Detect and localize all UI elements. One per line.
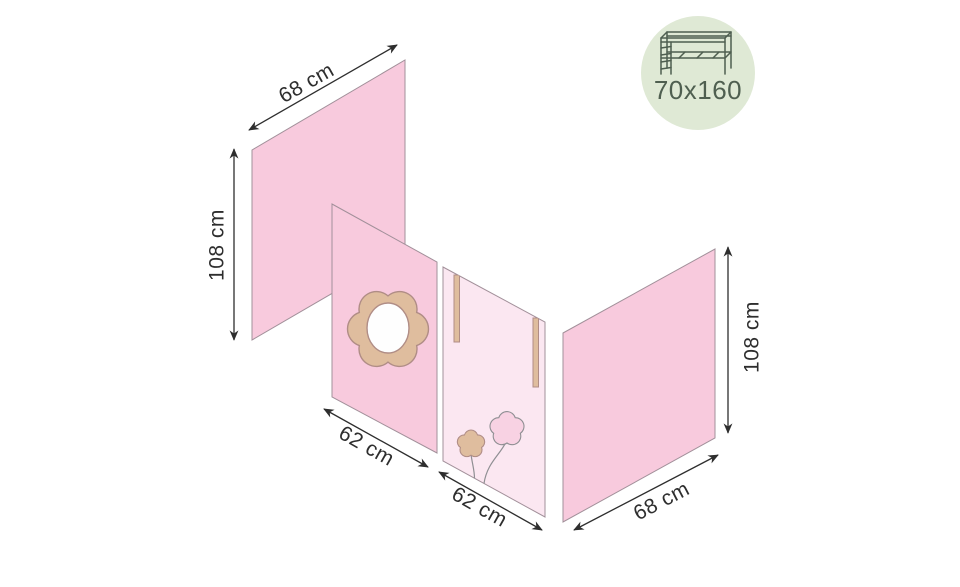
badge-circle	[641, 16, 755, 130]
dim-label-back-left-width: 68 cm	[275, 58, 338, 107]
dim-label-left-height: 108 cm	[206, 209, 229, 281]
diagram-canvas: 68 cm 108 cm 62 cm 62 cm 68 cm 108 cm 70…	[0, 0, 960, 587]
tie-ribbon-right	[533, 318, 539, 387]
product-dimension-diagram: 68 cm 108 cm 62 cm 62 cm 68 cm 108 cm 70…	[0, 0, 960, 587]
size-badge: 70x160	[641, 16, 755, 130]
panel-back-right	[563, 249, 715, 522]
flower-window-opening	[367, 303, 409, 353]
badge-size-text: 70x160	[654, 75, 742, 105]
dim-label-right-height: 108 cm	[741, 301, 764, 373]
curtain-panels	[252, 60, 715, 522]
flower-window	[348, 292, 429, 367]
tie-ribbon-left	[454, 275, 460, 342]
dim-label-front-left-width: 62 cm	[335, 421, 398, 470]
